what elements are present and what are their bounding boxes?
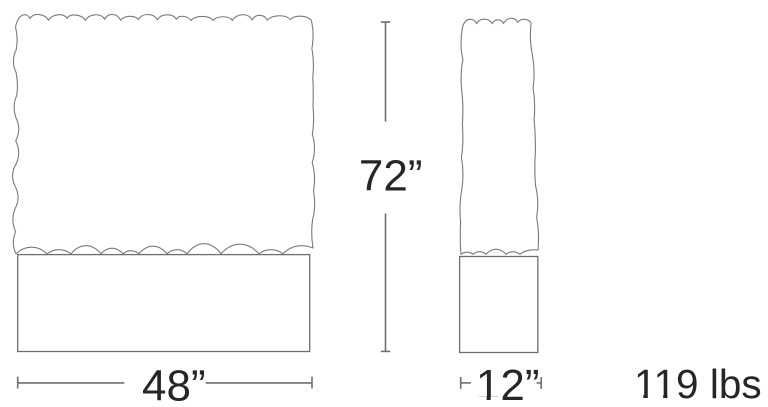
svg-text:72”: 72” <box>359 152 423 201</box>
svg-text:48”: 48” <box>142 362 206 407</box>
svg-text:119 lbs: 119 lbs <box>634 361 762 407</box>
